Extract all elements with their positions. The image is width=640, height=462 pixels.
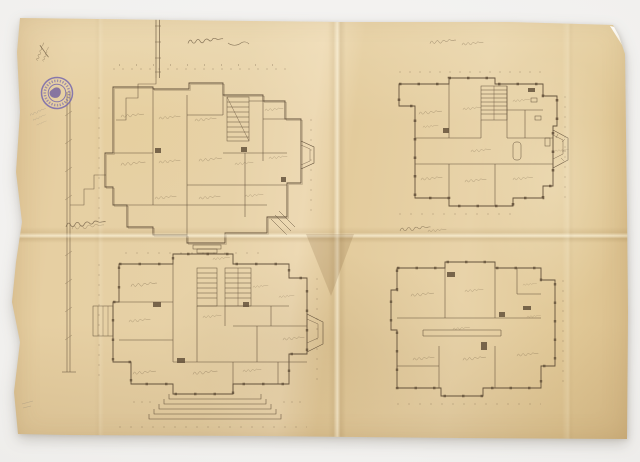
plan-b-fixtures: [513, 98, 550, 160]
ink-inventory-number: [33, 42, 53, 65]
plan-a-outer-wall: [105, 83, 301, 243]
plan-a-stoves: [155, 147, 286, 182]
plan-lower-left: [93, 254, 323, 427]
plan-a-partitions: [113, 89, 287, 235]
plan-b-dimension-lines: [399, 72, 565, 214]
plan-c-room-labels: [129, 257, 304, 374]
plan-d-stoves: [447, 272, 531, 350]
plan-c-left-porch: [93, 306, 113, 336]
plan-a-bay-window: [301, 141, 314, 169]
plan-d-wall-piers: [391, 262, 555, 396]
plan-b-terrace-bay: [553, 130, 568, 168]
photo-background: [0, 0, 640, 462]
caption-lower-right: [400, 226, 446, 231]
round-ink-stamp: [39, 75, 74, 110]
plan-upper-left: [99, 65, 314, 253]
plan-b-stoves: [443, 88, 535, 133]
plan-c-staircase-2: [225, 268, 251, 306]
plan-b-outer-wall: [399, 78, 557, 206]
plan-b-partitions: [415, 84, 553, 206]
ink-drawing-layer: [10, 12, 632, 444]
drawing-sheet: [10, 12, 632, 444]
caption-upper-right: [430, 40, 483, 45]
plan-c-entrance-steps: [149, 394, 281, 419]
plan-c-staircase-1: [197, 268, 217, 306]
plan-c-stoves: [153, 302, 249, 363]
boundary-line: [62, 18, 161, 372]
plan-b-wall-piers: [399, 78, 557, 206]
plan-d-dimension-lines: [397, 280, 563, 404]
plan-a-room-labels: [121, 108, 287, 199]
plan-c-bay-window: [307, 314, 323, 352]
plan-lower-right: [391, 262, 563, 404]
plan-upper-right: [399, 72, 569, 214]
pencil-note: [30, 108, 50, 126]
drawing-sheet-wrapper: [10, 12, 632, 444]
caption-upper-left: [188, 38, 249, 45]
plan-d-room-labels: [411, 283, 541, 360]
plan-d-partitions: [397, 268, 541, 388]
plan-c-partitions: [119, 264, 307, 394]
stamp-center-blob: [49, 87, 62, 99]
plan-d-outer-wall: [391, 262, 555, 396]
plan-a-staircase: [227, 97, 249, 141]
plan-b-staircase: [481, 86, 507, 120]
pencil-tick: [22, 401, 33, 408]
plan-c-dimension-lines: [99, 264, 317, 427]
caption-lower-left: [66, 221, 106, 229]
